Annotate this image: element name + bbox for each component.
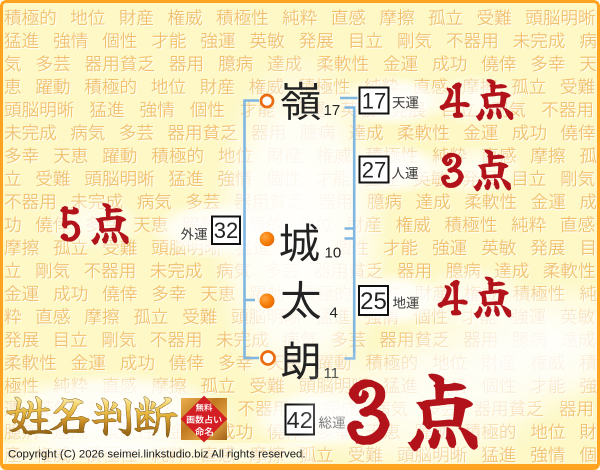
svg-text:17: 17 (324, 102, 341, 119)
svg-text:27: 27 (362, 157, 386, 182)
svg-text:10: 10 (325, 245, 342, 262)
svg-text:Copyright (C) 2026 seimei.link: Copyright (C) 2026 seimei.linkstudio.biz… (8, 449, 306, 461)
svg-text:32: 32 (214, 218, 238, 243)
svg-text:25: 25 (360, 288, 387, 315)
svg-text:4: 4 (330, 305, 338, 322)
svg-text:17: 17 (362, 88, 386, 113)
